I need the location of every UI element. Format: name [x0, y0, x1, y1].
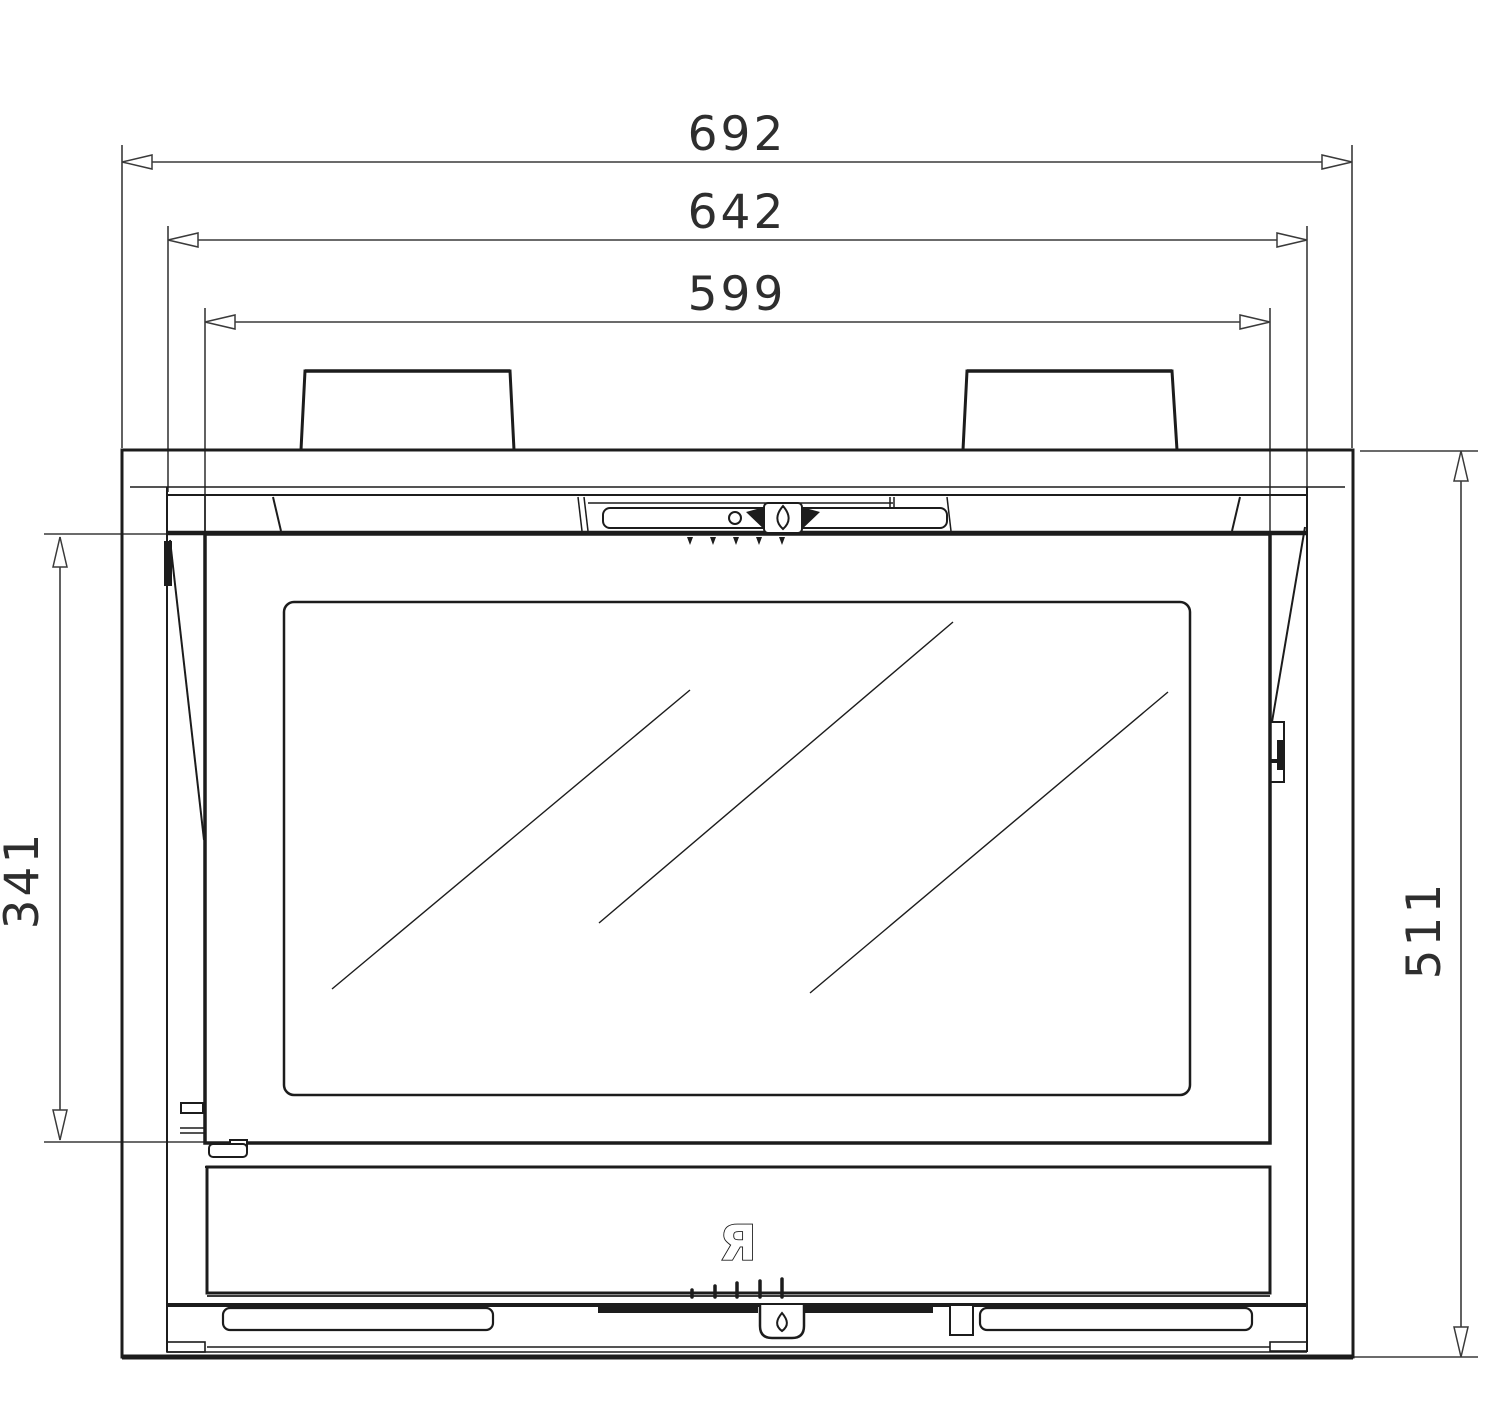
dim-label-overall-height: 511: [1397, 881, 1452, 980]
vent-recess-right: [980, 1308, 1252, 1330]
arrowhead-bottom: [1454, 1327, 1468, 1357]
hinge-top-left: [164, 541, 172, 586]
dimension-door-height: 341: [0, 534, 205, 1142]
bottom-notch: [950, 1305, 973, 1335]
band-left-slant: [273, 497, 281, 531]
arrowhead-left: [168, 233, 198, 247]
door-handle-grip: [1277, 740, 1284, 770]
door-frame: [205, 534, 1270, 1143]
arrowhead-top: [53, 537, 67, 567]
brand-logo: Я: [720, 1216, 757, 1272]
arrowhead-top: [1454, 451, 1468, 481]
fireplace-front-elevation: 692 642 599 341 511: [0, 0, 1500, 1427]
slot-bar-right: [805, 1306, 933, 1313]
dim-label-door-height: 341: [0, 831, 50, 930]
vent-recess-left: [223, 1308, 493, 1330]
door-bevel-left: [170, 540, 204, 840]
unit-body: Я: [122, 371, 1353, 1357]
arrowhead-bottom: [53, 1110, 67, 1140]
base-step-left: [167, 1342, 205, 1352]
dim-label-frame-width: 642: [688, 185, 787, 240]
dimension-door-width: 599: [205, 267, 1270, 532]
top-vent-band: [167, 495, 1307, 533]
ash-drawer: Я: [207, 1167, 1270, 1297]
hinge-bottom-left: [181, 1103, 203, 1113]
dim-label-overall-width: 692: [688, 107, 787, 162]
arrowhead-right: [1240, 315, 1270, 329]
dim-label-door-width: 599: [688, 267, 787, 322]
arrowhead-left: [205, 315, 235, 329]
door-top-ticks: [687, 537, 785, 545]
arrowhead-left: [122, 155, 152, 169]
top-tab-left: [301, 371, 514, 450]
door: [164, 527, 1305, 1167]
base-step-right: [1270, 1342, 1307, 1351]
door-glass: [284, 602, 1190, 1095]
arrowhead-right: [1277, 233, 1307, 247]
technical-drawing-canvas: 692 642 599 341 511: [0, 0, 1500, 1427]
dimension-frame-width: 642: [168, 185, 1307, 492]
door-bevel-right: [1272, 527, 1305, 722]
arrowhead-right: [1322, 155, 1352, 169]
band-right-slant: [1232, 497, 1240, 531]
bottom-band: [167, 1305, 1307, 1352]
top-tab-right: [963, 371, 1177, 450]
dimension-overall-height: 511: [1318, 451, 1478, 1357]
slot-bar-left: [598, 1306, 758, 1313]
glass-reflections: [332, 622, 1168, 993]
door-bottom-latch: [209, 1144, 247, 1157]
air-control-pin: [729, 512, 741, 524]
